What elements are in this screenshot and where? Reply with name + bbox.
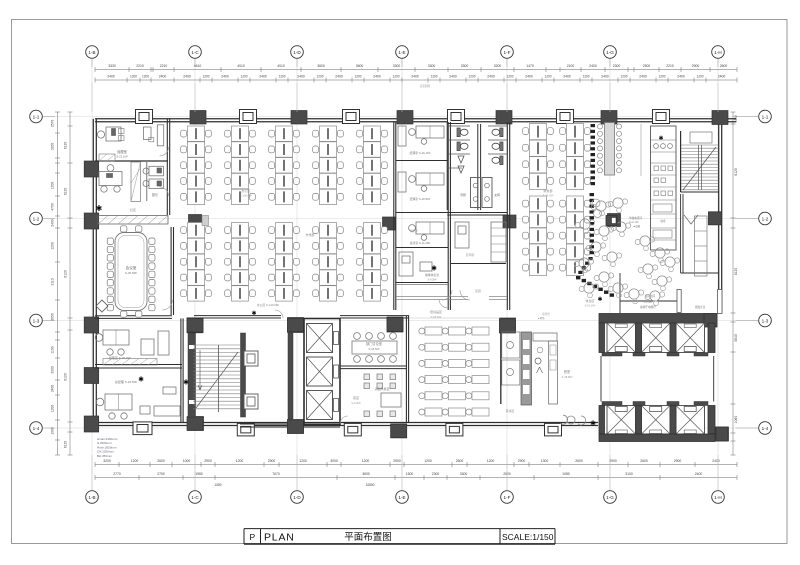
svg-text:客梯厅电梯厅: 客梯厅电梯厅 — [640, 305, 656, 309]
svg-text:应急照明: 应急照明 — [420, 84, 431, 88]
svg-text:2600: 2600 — [456, 459, 464, 463]
svg-text:1000: 1000 — [183, 459, 191, 463]
svg-text:3200: 3200 — [494, 64, 502, 68]
svg-text:6120: 6120 — [734, 168, 738, 176]
svg-text:1200: 1200 — [240, 75, 247, 79]
svg-text:2400: 2400 — [563, 75, 571, 79]
svg-text:走廊: 走廊 — [475, 288, 481, 293]
svg-text:2300: 2300 — [613, 64, 621, 68]
svg-text:1200: 1200 — [487, 459, 495, 463]
svg-text:S-91.1M²: S-91.1M² — [585, 304, 596, 308]
svg-text:✱: ✱ — [138, 375, 144, 383]
svg-text:8120: 8120 — [734, 268, 738, 276]
svg-text:2400: 2400 — [221, 75, 229, 79]
svg-text:1200: 1200 — [696, 75, 703, 79]
svg-text:1470: 1470 — [526, 64, 534, 68]
svg-text:2400: 2400 — [297, 75, 305, 79]
svg-text:S-11.1M²: S-11.1M² — [629, 221, 639, 224]
svg-text:1200: 1200 — [620, 75, 627, 79]
svg-text:2400: 2400 — [411, 75, 419, 79]
svg-text:6120: 6120 — [64, 188, 68, 196]
svg-text:2400: 2400 — [373, 75, 381, 79]
svg-text:2300: 2300 — [432, 472, 440, 476]
svg-text:✱: ✱ — [658, 135, 663, 142]
svg-text:1200: 1200 — [506, 75, 513, 79]
svg-text:1-1: 1-1 — [33, 114, 40, 119]
svg-text:2210: 2210 — [136, 64, 144, 68]
svg-text:1-D: 1-D — [293, 495, 301, 500]
svg-text:1-G: 1-G — [606, 495, 614, 500]
svg-text:3200: 3200 — [103, 459, 111, 463]
svg-text:平面布置图: 平面布置图 — [344, 531, 392, 543]
svg-text:1200: 1200 — [316, 75, 323, 79]
svg-text:部长: 部长 — [152, 192, 159, 197]
svg-text:SCALE:1/150: SCALE:1/150 — [502, 532, 554, 542]
svg-text:女厕: 女厕 — [494, 193, 500, 197]
svg-text:10800: 10800 — [366, 483, 375, 487]
svg-text:1-C: 1-C — [191, 495, 199, 500]
svg-text:2400: 2400 — [589, 64, 597, 68]
svg-text:✱: ✱ — [590, 419, 596, 427]
svg-text:会议室: 会议室 — [126, 265, 137, 270]
svg-text:2770: 2770 — [113, 472, 121, 476]
svg-text:1500: 1500 — [406, 472, 414, 476]
svg-text:1200: 1200 — [51, 405, 55, 413]
svg-text:3600: 3600 — [317, 64, 325, 68]
svg-text:2400: 2400 — [712, 459, 720, 463]
svg-text:咖啡: 咖啡 — [660, 219, 666, 223]
svg-text:经理室 S-16.1M²: 经理室 S-16.1M² — [410, 151, 431, 155]
svg-text:1-3: 1-3 — [33, 318, 40, 323]
svg-text:男厕: 男厕 — [460, 193, 466, 197]
svg-text:1-E: 1-E — [398, 50, 405, 55]
svg-text:3110: 3110 — [51, 278, 55, 285]
svg-text:1200: 1200 — [142, 75, 149, 79]
svg-text:市场部: 市场部 — [305, 232, 314, 237]
svg-text:办公区: 办公区 — [241, 188, 250, 193]
svg-text:1200: 1200 — [236, 459, 244, 463]
svg-text:5940: 5940 — [734, 334, 738, 342]
svg-text:▲地垫: ▲地垫 — [537, 316, 545, 320]
svg-text:茶室: 茶室 — [353, 395, 359, 400]
svg-text:1-B: 1-B — [88, 50, 95, 55]
svg-text:1-4: 1-4 — [762, 426, 769, 431]
svg-text:1200: 1200 — [468, 75, 475, 79]
svg-text:1200: 1200 — [362, 459, 370, 463]
svg-text:经理室: 经理室 — [117, 149, 127, 154]
svg-text:2210: 2210 — [160, 64, 168, 68]
svg-text:1200: 1200 — [544, 75, 551, 79]
svg-text:2210: 2210 — [666, 64, 674, 68]
svg-text:✱: ✱ — [96, 204, 103, 213]
svg-text:2400: 2400 — [183, 75, 191, 79]
svg-text:▲设备: ▲设备 — [633, 224, 641, 228]
svg-text:1200: 1200 — [354, 75, 361, 79]
svg-text:2400: 2400 — [695, 472, 703, 476]
svg-text:3300: 3300 — [460, 472, 468, 476]
svg-text:3200: 3200 — [51, 143, 55, 151]
svg-text:2400: 2400 — [335, 75, 343, 79]
svg-text:1080: 1080 — [562, 472, 570, 476]
svg-text:1-G: 1-G — [606, 50, 614, 55]
svg-text:疏散走道: 疏散走道 — [695, 305, 706, 309]
svg-text:✱: ✱ — [597, 296, 602, 303]
svg-text:2600: 2600 — [640, 459, 648, 463]
svg-text:6120: 6120 — [64, 142, 68, 150]
svg-text:1200: 1200 — [299, 459, 307, 463]
svg-text:2900: 2900 — [692, 64, 700, 68]
svg-text:1200: 1200 — [131, 459, 139, 463]
svg-text:2400: 2400 — [639, 75, 647, 79]
svg-text:总经理 S-33.5M²: 总经理 S-33.5M² — [115, 379, 137, 384]
svg-text:✱: ✱ — [183, 378, 189, 386]
svg-text:咖啡休息室: 咖啡休息室 — [425, 273, 439, 277]
svg-text:头脑风暴室: 头脑风暴室 — [374, 386, 389, 391]
svg-text:1200: 1200 — [51, 182, 55, 190]
svg-text:接待室 S-11.2M²: 接待室 S-11.2M² — [410, 241, 431, 245]
svg-text:3600: 3600 — [362, 472, 370, 476]
svg-text:1100: 1100 — [51, 346, 55, 353]
svg-text:✱: ✱ — [431, 264, 437, 272]
svg-text:部门讨论室: 部门讨论室 — [366, 341, 382, 346]
svg-text:6650: 6650 — [51, 313, 55, 321]
svg-text:2400: 2400 — [487, 75, 495, 79]
svg-text:1200: 1200 — [658, 75, 665, 79]
svg-text:1300: 1300 — [541, 459, 549, 463]
svg-text:2900: 2900 — [204, 459, 212, 463]
svg-text:2900: 2900 — [609, 459, 617, 463]
svg-text:6120: 6120 — [64, 441, 68, 449]
svg-text:✱: ✱ — [251, 310, 256, 317]
svg-text:S-74.1M²: S-74.1M² — [543, 194, 554, 198]
svg-text:1200: 1200 — [278, 75, 285, 79]
svg-text:1-D: 1-D — [293, 50, 301, 55]
svg-text:2600: 2600 — [720, 64, 728, 68]
svg-text:2100: 2100 — [567, 64, 575, 68]
svg-text:1-E: 1-E — [398, 495, 405, 500]
svg-text:3300: 3300 — [461, 64, 469, 68]
svg-text:1200: 1200 — [392, 75, 399, 79]
svg-text:2400: 2400 — [449, 75, 457, 79]
svg-text:1200: 1200 — [130, 75, 137, 79]
svg-text:1200: 1200 — [430, 75, 437, 79]
svg-text:4010: 4010 — [237, 64, 245, 68]
svg-text:1200: 1200 — [51, 242, 55, 250]
svg-text:P: P — [249, 532, 255, 542]
svg-text:2400: 2400 — [677, 75, 685, 79]
svg-text:BH:450mm: BH:450mm — [97, 454, 113, 458]
svg-text:1-H: 1-H — [714, 50, 721, 55]
svg-text:2400: 2400 — [259, 75, 267, 79]
svg-text:1-H: 1-H — [714, 495, 721, 500]
svg-text:1-F: 1-F — [504, 50, 511, 55]
svg-text:2400: 2400 — [51, 385, 55, 393]
svg-text:S-56.1M²: S-56.1M² — [431, 315, 442, 319]
svg-text:4700: 4700 — [51, 203, 55, 211]
svg-text:经理室 S-18.9M²: 经理室 S-18.9M² — [410, 197, 431, 201]
svg-text:单独电话间: 单独电话间 — [629, 216, 642, 220]
svg-text:6120: 6120 — [64, 270, 68, 278]
svg-text:1200: 1200 — [424, 459, 432, 463]
svg-text:PLAN: PLAN — [264, 532, 295, 544]
svg-text:1200: 1200 — [202, 75, 209, 79]
svg-text:3600: 3600 — [356, 64, 364, 68]
svg-text:S-28.5M²: S-28.5M² — [368, 347, 380, 351]
svg-text:2400: 2400 — [601, 75, 609, 79]
svg-text:财务部: 财务部 — [543, 188, 552, 193]
svg-text:休息区: 休息区 — [585, 298, 594, 303]
svg-text:2500: 2500 — [643, 64, 651, 68]
svg-text:3300: 3300 — [428, 64, 436, 68]
svg-text:3000: 3000 — [330, 459, 338, 463]
svg-text:社区: 社区 — [130, 207, 136, 212]
svg-text:S-5.4M²: S-5.4M² — [644, 301, 653, 304]
svg-text:2400: 2400 — [159, 75, 167, 79]
svg-text:餐厦: 餐厦 — [564, 369, 571, 374]
svg-text:培训品区: 培训品区 — [430, 309, 442, 314]
svg-text:1080: 1080 — [214, 483, 221, 487]
svg-text:S-9.6M²: S-9.6M² — [351, 401, 360, 405]
svg-text:S-9.3M²: S-9.3M² — [428, 279, 437, 282]
svg-text:办公区 S-136.8M²: 办公区 S-136.8M² — [257, 303, 279, 307]
svg-text:1200: 1200 — [582, 75, 589, 79]
svg-text:3100: 3100 — [625, 472, 633, 476]
svg-text:1980: 1980 — [195, 472, 203, 476]
svg-text:1060: 1060 — [734, 416, 738, 424]
svg-text:3300: 3300 — [393, 64, 401, 68]
svg-text:1-B: 1-B — [88, 495, 95, 500]
svg-text:1-F: 1-F — [504, 495, 511, 500]
svg-text:S-23.1M²: S-23.1M² — [116, 155, 128, 159]
svg-text:2900: 2900 — [518, 459, 526, 463]
svg-text:6120: 6120 — [64, 373, 68, 381]
svg-text:2400: 2400 — [718, 75, 726, 79]
svg-text:S-48.9M²: S-48.9M² — [562, 375, 573, 379]
svg-text:2400: 2400 — [525, 75, 533, 79]
svg-text:打印室: 打印室 — [466, 253, 475, 257]
svg-text:2600: 2600 — [575, 459, 583, 463]
svg-text:7670: 7670 — [272, 472, 280, 476]
svg-text:3330: 3330 — [108, 64, 116, 68]
svg-text:2900: 2900 — [674, 459, 682, 463]
svg-text:3300: 3300 — [51, 366, 55, 374]
svg-text:1-2: 1-2 — [762, 216, 769, 221]
svg-text:2400: 2400 — [51, 219, 55, 227]
svg-text:2900: 2900 — [268, 459, 276, 463]
svg-text:1-2: 1-2 — [33, 216, 40, 221]
svg-text:1-3: 1-3 — [762, 318, 769, 323]
svg-text:S-136.8M²: S-136.8M² — [240, 194, 252, 198]
svg-text:2570: 2570 — [51, 120, 55, 128]
svg-text:4010: 4010 — [277, 64, 285, 68]
svg-text:1-4: 1-4 — [33, 426, 40, 431]
svg-text:1000: 1000 — [51, 427, 55, 435]
svg-text:1-1: 1-1 — [762, 114, 769, 119]
svg-text:S-36.5M²: S-36.5M² — [125, 271, 137, 275]
svg-text:2900: 2900 — [393, 459, 401, 463]
svg-text:1-C: 1-C — [191, 50, 199, 55]
svg-text:2600: 2600 — [157, 459, 165, 463]
svg-text:茶水区: 茶水区 — [506, 409, 515, 413]
svg-text:接待台: 接待台 — [542, 312, 550, 316]
svg-text:财务学: 财务学 — [410, 229, 418, 233]
svg-text:2750: 2750 — [157, 472, 165, 476]
svg-text:2400: 2400 — [107, 75, 115, 79]
